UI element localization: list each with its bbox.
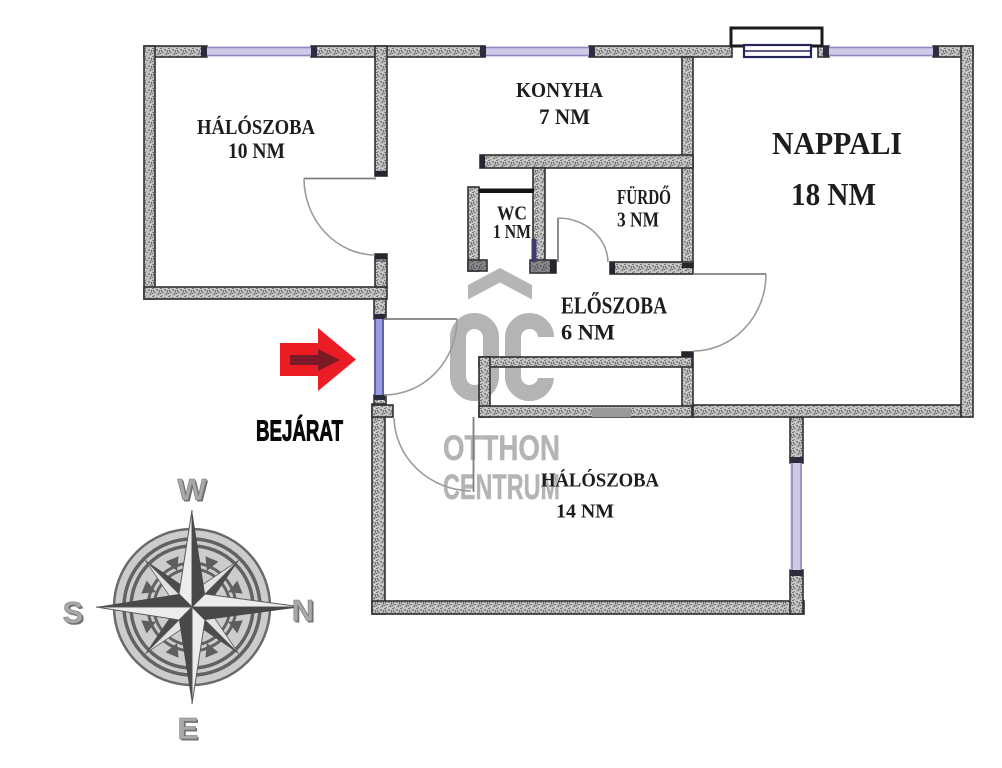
- svg-text:6 NM: 6 NM: [561, 320, 615, 345]
- svg-text:FÜRDŐ: FÜRDŐ: [617, 185, 671, 209]
- svg-text:3 NM: 3 NM: [617, 208, 659, 232]
- svg-text:W: W: [177, 472, 207, 507]
- svg-text:OTTHON: OTTHON: [443, 429, 560, 468]
- svg-text:ELŐSZOBA: ELŐSZOBA: [561, 293, 668, 320]
- svg-text:14 NM: 14 NM: [556, 502, 614, 523]
- svg-text:10 NM: 10 NM: [228, 138, 285, 163]
- svg-text:HÁLÓSZOBA: HÁLÓSZOBA: [541, 470, 659, 492]
- svg-text:18 NM: 18 NM: [791, 176, 876, 212]
- svg-text:1 NM: 1 NM: [493, 221, 531, 243]
- svg-text:BEJÁRAT: BEJÁRAT: [256, 414, 343, 448]
- svg-text:HÁLÓSZOBA: HÁLÓSZOBA: [197, 115, 316, 139]
- svg-text:KONYHA: KONYHA: [516, 78, 604, 102]
- svg-text:E: E: [178, 711, 199, 746]
- svg-text:S: S: [63, 595, 84, 630]
- svg-text:NAPPALI: NAPPALI: [772, 125, 902, 161]
- svg-text:N: N: [292, 593, 314, 628]
- svg-text:7 NM: 7 NM: [539, 104, 590, 129]
